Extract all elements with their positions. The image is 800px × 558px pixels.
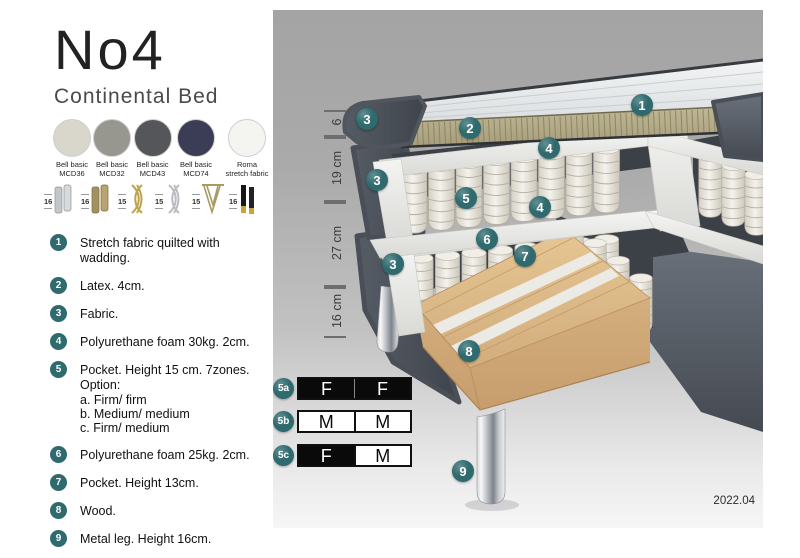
leg-height: 15 xyxy=(155,194,163,209)
leg-option: 15 xyxy=(118,183,155,220)
feature-text: Stretch fabric quilted with wadding. xyxy=(80,234,272,266)
leg-height: 15 xyxy=(192,194,200,209)
leg-height: 16 xyxy=(44,194,52,209)
callout-5: 5 xyxy=(455,187,477,209)
callout-3: 3 xyxy=(356,108,378,130)
fabric-swatch-label: Bell basic MCD36 xyxy=(56,160,88,178)
fabric-swatch-label: Roma stretch fabric xyxy=(226,160,269,178)
feature-list: 1 Stretch fabric quilted with wadding. 2… xyxy=(50,234,272,558)
feature-text: Polyurethane foam 30kg. 2cm. xyxy=(80,333,250,350)
feature-text: Wood. xyxy=(80,502,116,519)
fabric-swatch-circle xyxy=(134,119,172,157)
firmness-cell: F xyxy=(299,379,354,398)
hairpin-leg-icon xyxy=(201,183,225,220)
twist-silver-leg-icon xyxy=(164,183,186,220)
metal-leg-front xyxy=(477,409,505,504)
callout-8: 8 xyxy=(458,340,480,362)
firmness-table: MM xyxy=(297,410,412,433)
feature-text: Fabric. xyxy=(80,305,118,322)
firmness-row-5c: 5cFM xyxy=(273,444,412,467)
feature-text: Pocket. Height 15 cm. 7zones. Option:a. … xyxy=(80,361,272,435)
firmness-cell: M xyxy=(299,412,354,431)
twist-gold-leg-icon xyxy=(127,183,149,220)
feature-text: Pocket. Height 13cm. xyxy=(80,474,199,491)
base-fabric-right xyxy=(650,246,763,432)
leg-option: 15 xyxy=(192,183,229,220)
page: { "product": { "title": "No4", "subtitle… xyxy=(0,0,800,533)
firmness-cell: M xyxy=(354,412,411,431)
feature-item: 4 Polyurethane foam 30kg. 2cm. xyxy=(50,333,272,350)
fabric-swatch-label: Bell basic MCD74 xyxy=(180,160,212,178)
firmness-table: FM xyxy=(297,444,412,467)
fabric-swatch-label: Bell basic MCD43 xyxy=(136,160,168,178)
cyl-brass-leg-icon xyxy=(90,183,112,220)
feature-item: 2 Latex. 4cm. xyxy=(50,277,272,294)
brand-block: No4 Continental Bed xyxy=(54,22,218,109)
firmness-row-5a: 5aFF xyxy=(273,377,412,400)
feature-text: Latex. 4cm. xyxy=(80,277,145,294)
dimension-label: 19 cm xyxy=(330,128,344,208)
feature-number-badge: 6 xyxy=(50,446,67,463)
firmness-cell: F xyxy=(299,446,354,465)
version-label: 2022.04 xyxy=(713,495,755,507)
feature-item: 7 Pocket. Height 13cm. xyxy=(50,474,272,491)
feature-sub-option: c. Firm/ medium xyxy=(80,422,272,435)
callout-4: 4 xyxy=(538,137,560,159)
leg-height: 16 xyxy=(229,194,237,209)
fabric-swatch: Bell basic MCD74 xyxy=(173,119,219,178)
feature-sub-option: b. Medium/ medium xyxy=(80,408,272,421)
callout-2: 2 xyxy=(459,117,481,139)
callout-4: 4 xyxy=(529,196,551,218)
leg-height: 16 xyxy=(81,194,89,209)
fabric-swatch-label: Bell basic MCD32 xyxy=(96,160,128,178)
firmness-badge: 5a xyxy=(273,378,294,399)
feature-item: 1 Stretch fabric quilted with wadding. xyxy=(50,234,272,266)
feature-sub-option: a. Firm/ firm xyxy=(80,394,272,407)
feature-number-badge: 3 xyxy=(50,305,67,322)
callout-7: 7 xyxy=(514,245,536,267)
callout-1: 1 xyxy=(631,94,653,116)
fabric-swatch: Bell basic MCD36 xyxy=(52,119,92,178)
feature-number-badge: 2 xyxy=(50,277,67,294)
firmness-row-5b: 5bMM xyxy=(273,410,412,433)
feature-number-badge: 4 xyxy=(50,333,67,350)
feature-item: 3 Fabric. xyxy=(50,305,272,322)
leg-option: 16 xyxy=(44,183,81,220)
leg-option: 16 xyxy=(229,183,266,220)
fabric-swatch-circle xyxy=(53,119,91,157)
product-subtitle: Continental Bed xyxy=(54,85,218,109)
firmness-table: FF xyxy=(297,377,412,400)
feature-number-badge: 1 xyxy=(50,234,67,251)
feature-number-badge: 7 xyxy=(50,474,67,491)
fabric-swatch: Bell basic MCD43 xyxy=(132,119,173,178)
feature-text: Polyurethane foam 25kg. 2cm. xyxy=(80,446,250,463)
leg-option: 15 xyxy=(155,183,192,220)
fabric-swatch-row: Bell basic MCD36 Bell basic MCD32 Bell b… xyxy=(52,119,275,178)
cyl-silver-leg-icon xyxy=(53,183,75,220)
black-gold-leg-icon xyxy=(238,183,258,220)
firmness-cell: M xyxy=(354,446,411,465)
callout-6: 6 xyxy=(476,228,498,250)
feature-item: 6 Polyurethane foam 25kg. 2cm. xyxy=(50,446,272,463)
callout-3: 3 xyxy=(382,253,404,275)
callout-3: 3 xyxy=(366,169,388,191)
callout-9: 9 xyxy=(452,460,474,482)
product-title: No4 xyxy=(54,22,218,78)
cutaway-diagram-panel: 123435467389619 cm27 cm16 cm5aFF5bMM5cFM… xyxy=(273,10,763,528)
feature-item: 5 Pocket. Height 15 cm. 7zones. Option:a… xyxy=(50,361,272,435)
fabric-swatch-circle xyxy=(93,119,131,157)
firmness-cell: F xyxy=(354,379,410,398)
leg-height: 15 xyxy=(118,194,126,209)
fabric-swatch: Bell basic MCD32 xyxy=(92,119,132,178)
leg-option: 16 xyxy=(81,183,118,220)
feature-number-badge: 5 xyxy=(50,361,67,378)
firmness-badge: 5b xyxy=(273,411,294,432)
fabric-swatch: Roma stretch fabric xyxy=(219,119,275,178)
fabric-swatch-circle xyxy=(177,119,215,157)
fabric-swatch-circle xyxy=(228,119,266,157)
feature-item: 8 Wood. xyxy=(50,502,272,519)
feature-number-badge: 8 xyxy=(50,502,67,519)
dimension-label: 16 cm xyxy=(330,271,344,351)
leg-options-row: 161615151516 xyxy=(44,183,266,220)
firmness-badge: 5c xyxy=(273,445,294,466)
